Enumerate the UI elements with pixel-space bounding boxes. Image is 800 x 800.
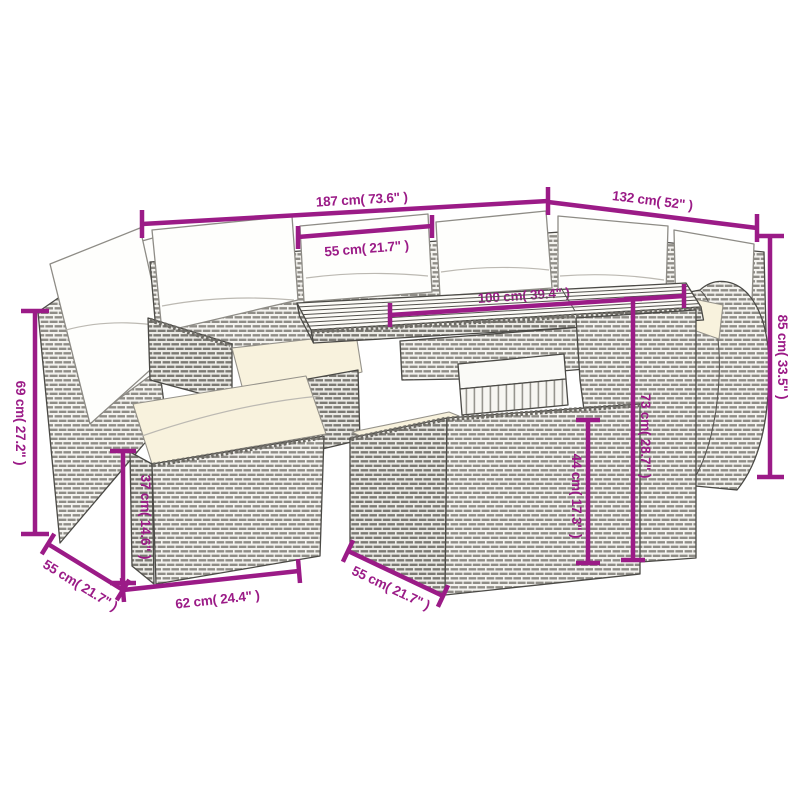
dim-label-37: 37 cm( 14.6" ): [138, 475, 153, 560]
back-pillow: [436, 211, 552, 296]
dim-label-69: 69 cm( 27.2" ): [13, 381, 28, 466]
dim-label-44: 44 cm( 17.3" ): [569, 454, 584, 539]
ottoman: [130, 376, 326, 584]
dim-label-85: 85 cm( 33.5" ): [775, 315, 790, 400]
bench-front-face: [445, 404, 640, 595]
product-dimension-diagram: 100 cm( 39.4" ) 187 cm( 73.6" ): [0, 0, 800, 800]
dim-cap: [298, 559, 300, 583]
diagram-canvas: 100 cm( 39.4" ) 187 cm( 73.6" ): [0, 0, 800, 800]
dim-label-73: 73 cm( 28.7" ): [638, 394, 653, 479]
dim-label-62: 62 cm( 24.4" ): [175, 587, 261, 611]
dim-cap: [122, 578, 124, 602]
dim-label-187: 187 cm( 73.6" ): [315, 189, 408, 209]
bench: [350, 404, 640, 595]
dim-cap: [42, 534, 55, 554]
dimension-ottoman-depth: 55 cm( 21.7" ): [40, 534, 129, 614]
back-pillow: [558, 216, 668, 294]
